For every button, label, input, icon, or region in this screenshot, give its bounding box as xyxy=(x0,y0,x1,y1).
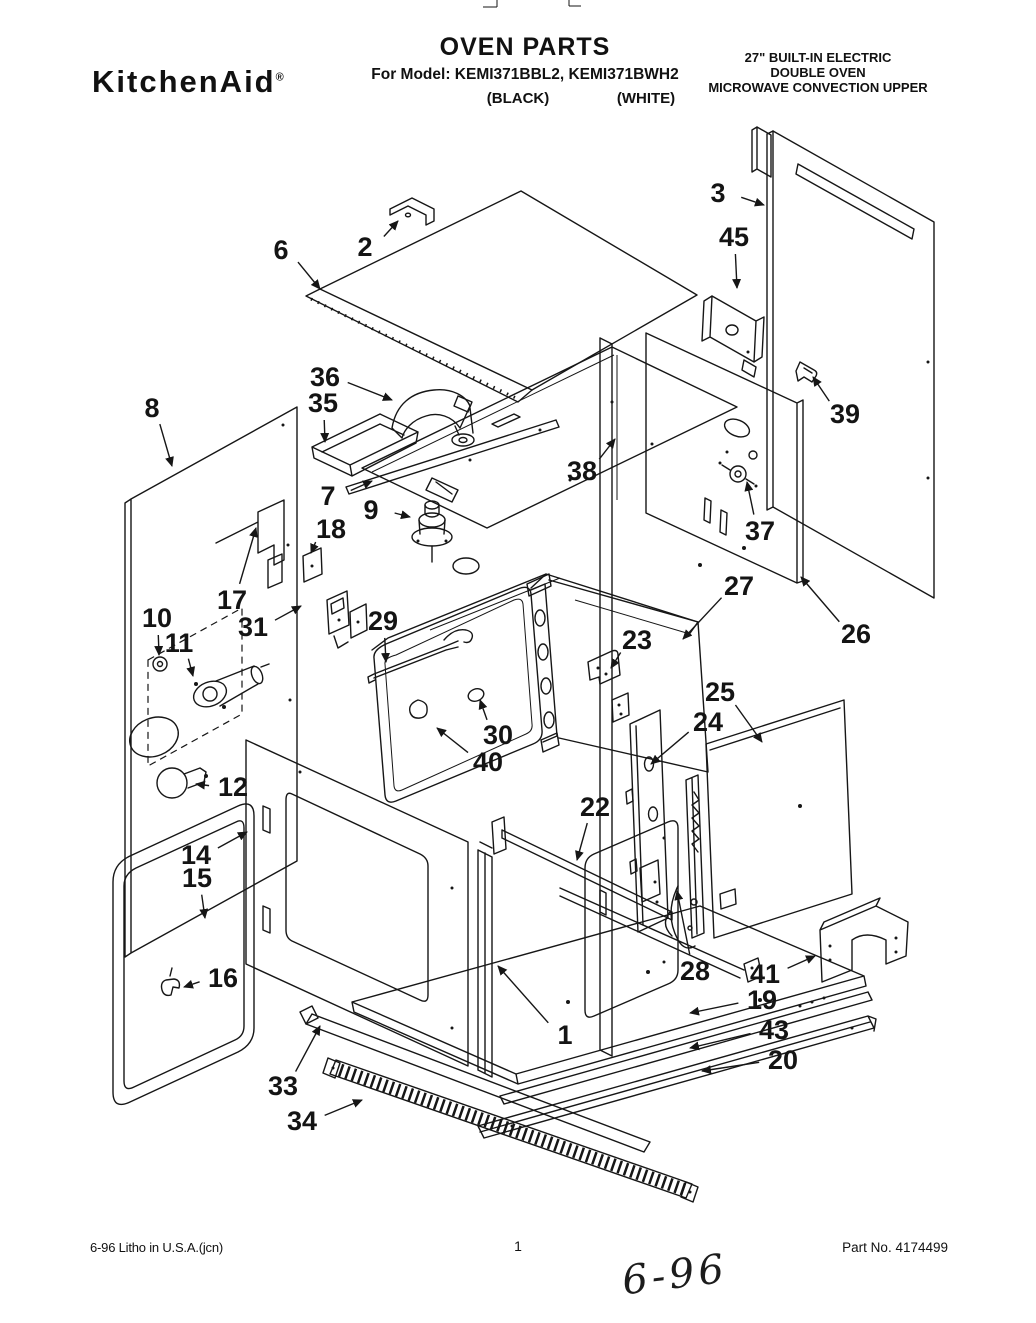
panel-25-part xyxy=(706,700,852,938)
page-number: 1 xyxy=(498,1238,538,1254)
part-number: Part No. 4174499 xyxy=(688,1240,948,1255)
spec-block: 27" BUILT-IN ELECTRIC DOUBLE OVEN MICROW… xyxy=(668,50,968,95)
callout-38: 38 xyxy=(567,456,597,486)
callout-26: 26 xyxy=(841,619,871,649)
latch-28-part xyxy=(640,775,704,948)
callout-22: 22 xyxy=(580,792,610,822)
callout-leader-24 xyxy=(651,732,689,764)
callout-leader-12 xyxy=(196,784,209,786)
callout-leader-10 xyxy=(158,635,159,655)
callout-leader-15 xyxy=(202,895,205,918)
registered-trademark-symbol: ® xyxy=(276,72,286,84)
callout-37: 37 xyxy=(745,516,775,546)
callout-leader-22 xyxy=(577,823,587,860)
brand-logo-text: KitchenAid xyxy=(92,64,276,99)
callout-27: 27 xyxy=(724,571,754,601)
callout-33: 33 xyxy=(268,1071,298,1101)
callout-leader-36 xyxy=(348,383,392,400)
callout-36: 36 xyxy=(310,362,340,392)
callout-20: 20 xyxy=(768,1045,798,1075)
callout-45: 45 xyxy=(719,222,749,252)
callout-29: 29 xyxy=(368,606,398,636)
callout-leader-25 xyxy=(735,705,762,742)
exploded-view-drawing: 1236789101112141516171819202223242526272… xyxy=(0,0,1036,1323)
litho-note: 6-96 Litho in U.S.A.(jcn) xyxy=(90,1240,223,1255)
callout-3: 3 xyxy=(710,178,725,208)
callout-28: 28 xyxy=(680,956,710,986)
callout-24: 24 xyxy=(693,707,723,737)
callout-25: 25 xyxy=(705,677,735,707)
callout-leader-6 xyxy=(298,262,320,289)
bracket-24-part xyxy=(626,710,668,932)
callout-leader-16 xyxy=(184,982,200,987)
callout-43: 43 xyxy=(759,1015,789,1045)
callout-34: 34 xyxy=(287,1106,317,1136)
finish-label-black: (BLACK) xyxy=(468,90,568,107)
callout-11: 11 xyxy=(165,628,194,658)
callout-leader-9 xyxy=(395,513,410,517)
callout-40: 40 xyxy=(473,747,503,777)
callout-31: 31 xyxy=(238,612,268,642)
callout-leader-1 xyxy=(498,966,548,1023)
callout-18: 18 xyxy=(316,514,346,544)
support-rails-part xyxy=(492,817,762,982)
callout-leader-2 xyxy=(384,221,398,236)
spec-line-2: DOUBLE OVEN xyxy=(668,65,968,80)
callout-9: 9 xyxy=(363,495,378,525)
callout-leader-8 xyxy=(160,424,172,466)
callout-leader-39 xyxy=(813,377,829,401)
callout-leader-28 xyxy=(677,891,690,954)
callout-8: 8 xyxy=(144,393,159,423)
callout-leader-37 xyxy=(747,482,754,515)
oven-cavity-part xyxy=(368,574,708,802)
callout-23: 23 xyxy=(622,625,652,655)
rear-panel-part xyxy=(646,333,803,583)
callout-19: 19 xyxy=(747,985,777,1015)
callout-17: 17 xyxy=(217,585,247,615)
spec-line-1: 27" BUILT-IN ELECTRIC xyxy=(668,50,968,65)
callout-leader-27 xyxy=(683,598,722,639)
title-block: OVEN PARTS For Model: KEMI371BBL2, KEMI3… xyxy=(330,33,720,84)
callout-leader-17 xyxy=(240,528,256,584)
hinge-clips-part xyxy=(303,548,367,648)
model-line: For Model: KEMI371BBL2, KEMI371BWH2 xyxy=(330,66,720,84)
callout-leader-11 xyxy=(188,659,193,676)
callout-1: 1 xyxy=(557,1020,572,1050)
callout-leader-35 xyxy=(324,420,325,442)
callout-15: 15 xyxy=(182,863,212,893)
right-side-panel-part xyxy=(752,127,934,598)
callout-leader-3 xyxy=(741,197,764,205)
page-title: OVEN PARTS xyxy=(330,33,720,62)
shelf-assembly-part xyxy=(312,347,737,574)
callout-leader-30 xyxy=(480,700,487,720)
callout-2: 2 xyxy=(357,232,372,262)
callout-numbers: 1236789101112141516171819202223242526272… xyxy=(142,178,871,1136)
callout-leader-34 xyxy=(325,1100,362,1115)
crop-marks xyxy=(483,0,581,7)
callout-leader-33 xyxy=(296,1026,320,1072)
callout-leader-43 xyxy=(690,1034,751,1048)
callout-16: 16 xyxy=(208,963,238,993)
spec-line-3: MICROWAVE CONVECTION UPPER xyxy=(668,80,968,95)
bracket-45-part xyxy=(702,296,764,377)
callout-30: 30 xyxy=(483,720,513,750)
callout-leader-45 xyxy=(735,254,737,288)
callout-12: 12 xyxy=(218,772,248,802)
callout-leader-29 xyxy=(385,638,386,662)
callout-leader-lines xyxy=(158,197,839,1115)
bracket-41-part xyxy=(820,898,908,982)
callout-leader-19 xyxy=(690,1003,738,1013)
callout-39: 39 xyxy=(830,399,860,429)
callout-41: 41 xyxy=(750,959,780,989)
top-cover-part xyxy=(306,191,697,402)
callout-leader-41 xyxy=(788,956,815,968)
callout-7: 7 xyxy=(320,481,335,511)
callout-leader-26 xyxy=(801,577,839,622)
callout-35: 35 xyxy=(308,388,338,418)
callout-leader-40 xyxy=(437,728,468,753)
callout-leader-14 xyxy=(218,832,247,848)
parts-diagram-page: 1236789101112141516171819202223242526272… xyxy=(0,0,1036,1323)
brand-logo: KitchenAid® xyxy=(92,64,286,100)
callout-6: 6 xyxy=(273,235,288,265)
